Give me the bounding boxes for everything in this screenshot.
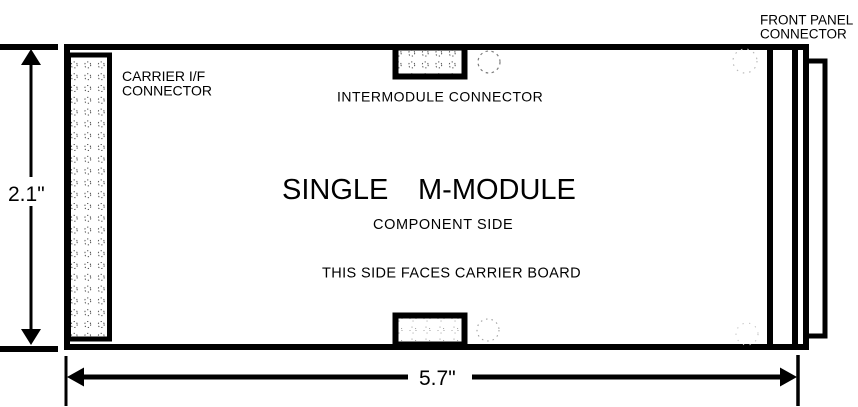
module-title-word2: M-MODULE <box>418 174 576 206</box>
carrier-if-connector <box>69 55 110 339</box>
height-dimension-label: 2.1" <box>8 183 45 206</box>
module-title-word1: SINGLE <box>282 174 388 206</box>
width-dimension: 5.7" <box>66 355 798 406</box>
height-dim-arrow-down <box>21 329 41 345</box>
carrier-if-label-line2: CONNECTOR <box>122 83 212 99</box>
width-dim-arrow-right <box>780 368 797 387</box>
bottom-intermodule-connector <box>396 316 465 345</box>
diagram-svg: 2.1" 5.7" CARRIER I/F CONNECTOR INTERMOD… <box>0 0 858 407</box>
height-dim-arrow-up <box>21 49 41 65</box>
component-side-label: COMPONENT SIDE <box>373 217 513 233</box>
orientation-note: THIS SIDE FACES CARRIER BOARD <box>322 266 581 282</box>
height-dimension: 2.1" <box>0 47 58 349</box>
width-dim-arrow-left <box>67 368 84 387</box>
front-panel-label-line2: CONNECTOR <box>760 27 847 42</box>
m-module-diagram: 2.1" 5.7" CARRIER I/F CONNECTOR INTERMOD… <box>0 0 858 407</box>
width-dimension-label: 5.7" <box>419 367 456 390</box>
front-panel-label-line1: FRONT PANEL <box>760 13 854 28</box>
intermodule-connector <box>396 48 465 77</box>
intermodule-label: INTERMODULE CONNECTOR <box>337 89 543 105</box>
